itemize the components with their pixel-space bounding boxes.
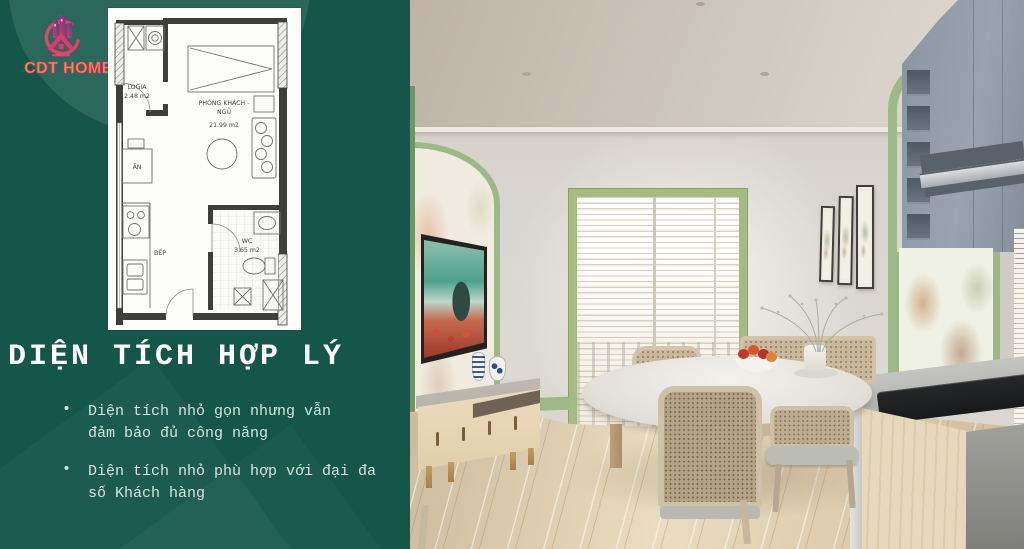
- room-label-dining: ĂN: [133, 162, 142, 171]
- room-label-logia: LOGIA: [128, 84, 148, 91]
- console-leg: [510, 452, 516, 470]
- room-area-wc: 3.65 m2: [234, 247, 260, 254]
- room-label-living-2: NGỦ: [217, 106, 231, 116]
- dining-chair: [766, 406, 858, 518]
- console-handle: [436, 432, 439, 446]
- decor-vase: [472, 352, 485, 381]
- bullet-line: số Khách hàng: [88, 485, 205, 502]
- bullet-list: • Diện tích nhỏ gọn nhưng vẫnđảm bảo đủ …: [60, 401, 405, 521]
- decor-vase: [489, 356, 506, 381]
- ceiling-light: [760, 72, 769, 76]
- slide: CDT HOMES: [0, 0, 1024, 549]
- plan-wc-tiles: [213, 210, 278, 310]
- plan-window: [118, 123, 122, 308]
- bullet-text: Diện tích nhỏ gọn nhưng vẫnđảm bảo đủ cô…: [88, 401, 400, 445]
- ceiling-light: [696, 2, 705, 6]
- picture-frame: [856, 185, 874, 289]
- ceiling-light: [522, 72, 531, 76]
- botanical-print: [841, 202, 849, 279]
- brand-logo-icon: [38, 14, 84, 62]
- bullet-text: Diện tích nhỏ phù hợp với đại đasố Khách…: [88, 461, 400, 505]
- tv-artwork: [424, 240, 484, 358]
- table-leg: [610, 424, 622, 468]
- room-area-living: 21.99 m2: [209, 122, 239, 129]
- room-label-living-1: PHÒNG KHÁCH -: [199, 98, 250, 107]
- bullet-marker: •: [62, 461, 71, 478]
- bullet-line: đảm bảo đủ công năng: [88, 425, 268, 442]
- floor-plan-drawing: LOGIA 2.48 m2 PHÒNG KHÁCH - NGỦ 21.99 m2…: [108, 8, 301, 330]
- console-handle: [514, 416, 517, 430]
- kitchen-island-side: [966, 424, 1024, 549]
- bullet-item: • Diện tích nhỏ phù hợp với đại đasố Khá…: [60, 461, 405, 505]
- open-shelf: [907, 70, 930, 96]
- chair-back: [770, 406, 854, 448]
- picture-frame: [837, 196, 854, 285]
- apple: [766, 352, 777, 362]
- flower-sprigs: [750, 290, 890, 352]
- page-title: DIỆN TÍCH HỢP LÝ: [8, 340, 410, 374]
- room-area-logia: 2.48 m2: [124, 93, 150, 100]
- console-handle: [488, 421, 491, 435]
- open-shelf: [907, 214, 930, 240]
- cabinet-seam: [973, 0, 974, 268]
- room-label-wc: WC: [242, 238, 252, 245]
- bullet-line: Diện tích nhỏ phù hợp với đại đa: [88, 463, 376, 480]
- console-handle: [462, 427, 465, 441]
- floor-plan: LOGIA 2.48 m2 PHÒNG KHÁCH - NGỦ 21.99 m2…: [108, 8, 301, 330]
- kitchen-island: [862, 398, 972, 549]
- console-leg: [426, 466, 432, 488]
- left-panel: CDT HOMES: [0, 0, 410, 549]
- console-leg: [528, 448, 534, 465]
- bullet-marker: •: [62, 401, 71, 418]
- bullet-line: Diện tích nhỏ gọn nhưng vẫn: [88, 403, 331, 420]
- cabinet-seam: [1002, 0, 1003, 268]
- botanical-print: [860, 191, 870, 283]
- tv-console: [416, 376, 540, 486]
- room-label-kitchen: BẾP: [154, 247, 166, 257]
- picture-frame: [819, 206, 835, 282]
- chair-back: [658, 386, 762, 508]
- chair-cushion: [766, 446, 858, 465]
- interior-photo: [410, 0, 1024, 549]
- bullet-item: • Diện tích nhỏ gọn nhưng vẫnđảm bảo đủ …: [60, 401, 405, 445]
- open-shelf: [907, 106, 930, 132]
- botanical-print: [823, 212, 831, 276]
- console-leg: [448, 462, 454, 482]
